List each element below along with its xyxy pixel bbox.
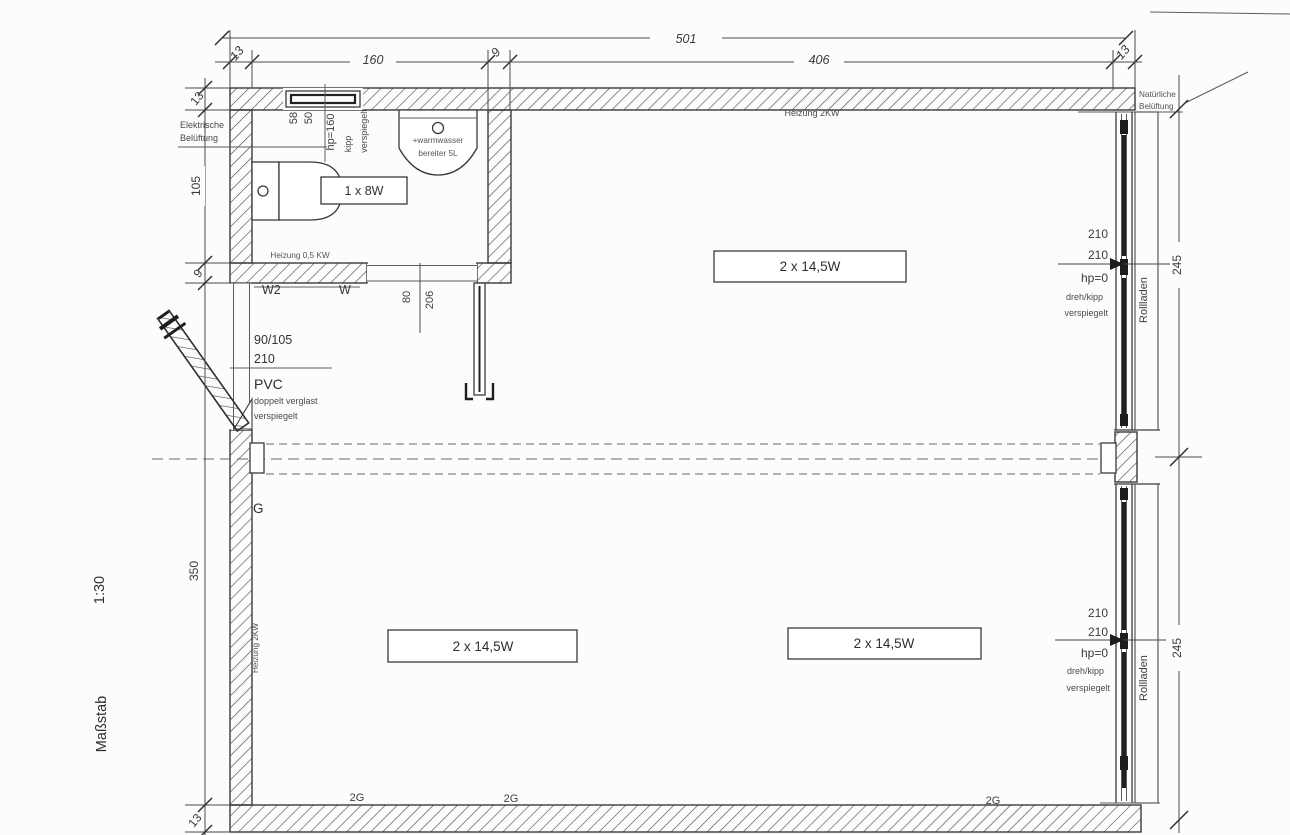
wall-left-lower bbox=[230, 430, 252, 805]
bath-window-width-2: 50 bbox=[303, 112, 315, 124]
bath-window-width-1: 58 bbox=[288, 112, 300, 124]
dim-left-13-bottom: 13 bbox=[185, 811, 205, 830]
heating-top-label: Heizung 2KW bbox=[784, 108, 840, 118]
window-top-open-type: dreh/kipp bbox=[1066, 292, 1103, 302]
water-heater: +warmwasser bereiter 5L bbox=[399, 110, 477, 175]
bath-door-opening bbox=[367, 264, 477, 282]
window-bottom-open-type: dreh/kipp bbox=[1067, 666, 1104, 676]
wall-right-middle bbox=[1115, 432, 1137, 482]
water-heater-label-1: +warmwasser bbox=[413, 136, 464, 145]
window-top-h1: 210 bbox=[1088, 227, 1108, 241]
bath-door-width-label: 80 bbox=[401, 291, 413, 303]
light-box-2: 2 x 14,5W bbox=[388, 630, 577, 662]
roller-shutter-top-label: Rollladen bbox=[1138, 277, 1150, 323]
electric-vent-line2: Belüftung bbox=[180, 133, 218, 143]
section-lines bbox=[152, 443, 1116, 474]
dim-left-9: 9 bbox=[190, 266, 205, 280]
roller-shutter-top-box bbox=[1135, 112, 1158, 430]
dim-top-160: 160 bbox=[363, 53, 384, 67]
right-window-bottom: Rollladen bbox=[1100, 484, 1160, 803]
bath-door bbox=[254, 264, 493, 399]
socket-label-2: 2G bbox=[504, 793, 519, 805]
dim-right-245-bottom: 245 bbox=[1170, 638, 1184, 658]
natural-vent-label: Natürliche Belüftung bbox=[1139, 72, 1248, 111]
light-box-1: 2 x 14,5W bbox=[714, 251, 906, 282]
wall-bath-bottom-left bbox=[230, 263, 367, 283]
right-wall-niche bbox=[1101, 443, 1116, 473]
wall-left-upper bbox=[230, 110, 252, 263]
dim-left-13-top: 13 bbox=[187, 89, 207, 108]
floor-plan-drawing: +warmwasser bereiter 5L 1 x 8W Heizung 0… bbox=[0, 0, 1290, 835]
scale-value: 1:30 bbox=[92, 576, 108, 604]
window-top-hp: hp=0 bbox=[1081, 271, 1108, 285]
dim-right-245-top: 245 bbox=[1170, 255, 1184, 275]
window-top-mullion-1 bbox=[1120, 120, 1128, 134]
light-box-3-label: 2 x 14,5W bbox=[854, 636, 915, 651]
window-bottom-mullion-3 bbox=[1120, 756, 1128, 770]
natural-vent-leader bbox=[1185, 72, 1248, 103]
window-bottom-glass-type: verspiegelt bbox=[1066, 683, 1110, 693]
bath-window-glass-type: verspiegelt bbox=[359, 109, 369, 153]
bath-door-handle-left bbox=[466, 383, 473, 399]
dim-top-9: 9 bbox=[488, 45, 503, 59]
heating-left-label: Heizung 2KW bbox=[251, 623, 260, 673]
window-top-mullion-3 bbox=[1120, 414, 1128, 426]
entry-door-size: 90/105 bbox=[254, 333, 292, 347]
dim-top-406: 406 bbox=[809, 53, 830, 67]
light-box-1-label: 2 x 14,5W bbox=[780, 259, 841, 274]
toilet-cistern bbox=[252, 162, 279, 220]
bath-window-open-type: kipp bbox=[343, 136, 353, 153]
scale-label: Maßstab bbox=[94, 696, 110, 752]
socket-label-3: 2G bbox=[986, 795, 1001, 807]
right-window-top-specs: 210 210 hp=0 dreh/kipp verspiegelt bbox=[1058, 227, 1170, 318]
window-top-glass-type: verspiegelt bbox=[1064, 308, 1108, 318]
dim-left-350: 350 bbox=[187, 561, 201, 581]
wall-top bbox=[230, 88, 1135, 110]
entry-door-glazing: doppelt verglast bbox=[254, 396, 318, 406]
dim-left-105: 105 bbox=[189, 176, 203, 196]
water-heater-label-2: bereiter 5L bbox=[418, 149, 458, 158]
light-box-3: 2 x 14,5W bbox=[788, 628, 981, 659]
window-top-mullion-2 bbox=[1120, 259, 1128, 275]
door-w-label: W bbox=[339, 283, 351, 297]
floor-plan-sheet: +warmwasser bereiter 5L 1 x 8W Heizung 0… bbox=[0, 0, 1290, 835]
dim-right: 245 245 bbox=[1155, 75, 1202, 833]
entry-door-mark: G bbox=[253, 501, 264, 516]
electric-vent-line1: Elektrische bbox=[180, 120, 224, 130]
natural-vent-line2: Belüftung bbox=[1139, 102, 1174, 111]
window-bottom-mullion-1 bbox=[1120, 488, 1128, 500]
natural-vent-line1: Natürliche bbox=[1139, 90, 1176, 99]
wall-bath-bottom-right bbox=[477, 263, 511, 283]
bath-light-label: 1 x 8W bbox=[345, 184, 384, 198]
roller-shutter-bottom-label: Rollladen bbox=[1138, 655, 1150, 701]
wall-bottom bbox=[230, 805, 1141, 832]
sheet-edge-line bbox=[1150, 12, 1290, 14]
light-box-2-label: 2 x 14,5W bbox=[453, 639, 514, 654]
wall-bath-right bbox=[488, 110, 511, 263]
window-bottom-h2: 210 bbox=[1088, 625, 1108, 639]
entry-door bbox=[153, 283, 254, 435]
scale-block: 1:30 Maßstab bbox=[92, 576, 110, 752]
left-wall-niche bbox=[250, 443, 264, 473]
entry-door-height: 210 bbox=[254, 352, 275, 366]
bath-heating-label: Heizung 0,5 KW bbox=[270, 251, 329, 260]
dim-total-width-label: 501 bbox=[676, 32, 697, 46]
bath-light-box: 1 x 8W bbox=[321, 177, 407, 204]
socket-label-1: 2G bbox=[350, 792, 365, 804]
bath-door-height-label: 206 bbox=[424, 291, 436, 309]
door-w2-label: W2 bbox=[262, 283, 281, 297]
entry-door-coating: verspiegelt bbox=[254, 411, 298, 421]
bath-door-handle-right bbox=[486, 383, 493, 399]
bath-window-specs: 58 50 hp=160 kipp verspiegelt bbox=[288, 109, 369, 153]
window-bottom-hp: hp=0 bbox=[1081, 646, 1108, 660]
entry-door-material: PVC bbox=[254, 376, 283, 392]
bath-window-hp: hp=160 bbox=[325, 113, 337, 150]
window-bottom-h1: 210 bbox=[1088, 606, 1108, 620]
window-top-h2: 210 bbox=[1088, 248, 1108, 262]
roller-shutter-bottom-box bbox=[1135, 484, 1158, 803]
